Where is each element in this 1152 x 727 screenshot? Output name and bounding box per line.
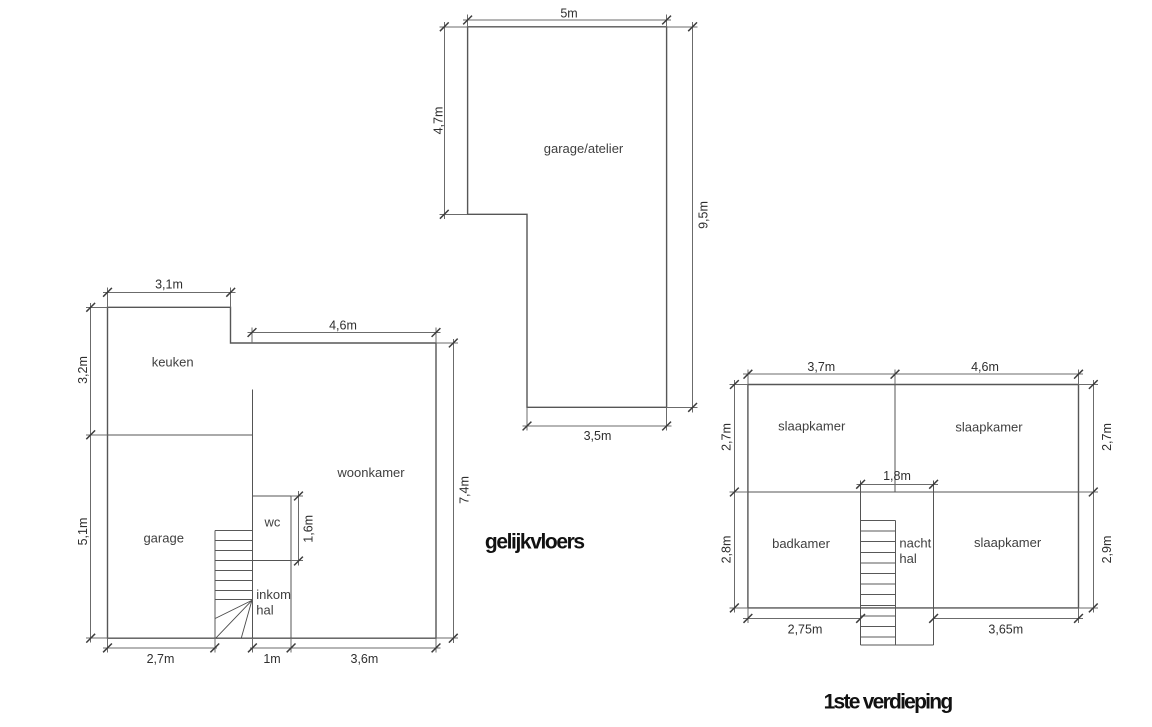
svg-text:wc: wc — [264, 515, 281, 530]
svg-text:2,8m: 2,8m — [719, 536, 733, 564]
svg-text:9,5m: 9,5m — [697, 201, 711, 229]
svg-text:slaapkamer: slaapkamer — [955, 420, 1023, 435]
svg-text:garage: garage — [143, 531, 183, 546]
svg-text:hal: hal — [256, 603, 273, 618]
svg-text:5m: 5m — [560, 7, 577, 21]
svg-text:hal: hal — [899, 551, 916, 566]
svg-text:3,5m: 3,5m — [584, 429, 612, 443]
svg-text:2,75m: 2,75m — [788, 622, 823, 636]
svg-text:1m: 1m — [263, 652, 280, 666]
svg-text:keuken: keuken — [152, 355, 194, 370]
svg-text:3,2m: 3,2m — [76, 356, 90, 384]
svg-text:4,6m: 4,6m — [971, 360, 999, 374]
svg-text:slaapkamer: slaapkamer — [778, 419, 846, 434]
svg-text:slaapkamer: slaapkamer — [974, 535, 1042, 550]
svg-text:woonkamer: woonkamer — [336, 465, 405, 480]
svg-text:2,7m: 2,7m — [1100, 423, 1114, 451]
svg-text:garage/atelier: garage/atelier — [544, 141, 624, 156]
svg-text:3,6m: 3,6m — [351, 652, 379, 666]
svg-text:1,6m: 1,6m — [302, 515, 316, 543]
svg-text:4,7m: 4,7m — [432, 107, 446, 135]
svg-text:5,1m: 5,1m — [76, 518, 90, 546]
svg-text:2,7m: 2,7m — [147, 652, 175, 666]
svg-text:1ste verdieping: 1ste verdieping — [824, 691, 953, 714]
svg-text:3,7m: 3,7m — [807, 360, 835, 374]
svg-text:3,1m: 3,1m — [155, 278, 183, 292]
svg-text:nacht: nacht — [899, 536, 931, 551]
svg-text:gelijkvloers: gelijkvloers — [485, 531, 584, 554]
svg-text:7,4m: 7,4m — [458, 476, 472, 504]
svg-text:badkamer: badkamer — [772, 536, 830, 551]
svg-text:3,65m: 3,65m — [988, 622, 1023, 636]
svg-text:inkom: inkom — [256, 587, 291, 602]
svg-text:4,6m: 4,6m — [329, 318, 357, 332]
svg-text:1,8m: 1,8m — [883, 469, 911, 483]
svg-text:2,7m: 2,7m — [719, 423, 733, 451]
svg-text:2,9m: 2,9m — [1100, 536, 1114, 564]
